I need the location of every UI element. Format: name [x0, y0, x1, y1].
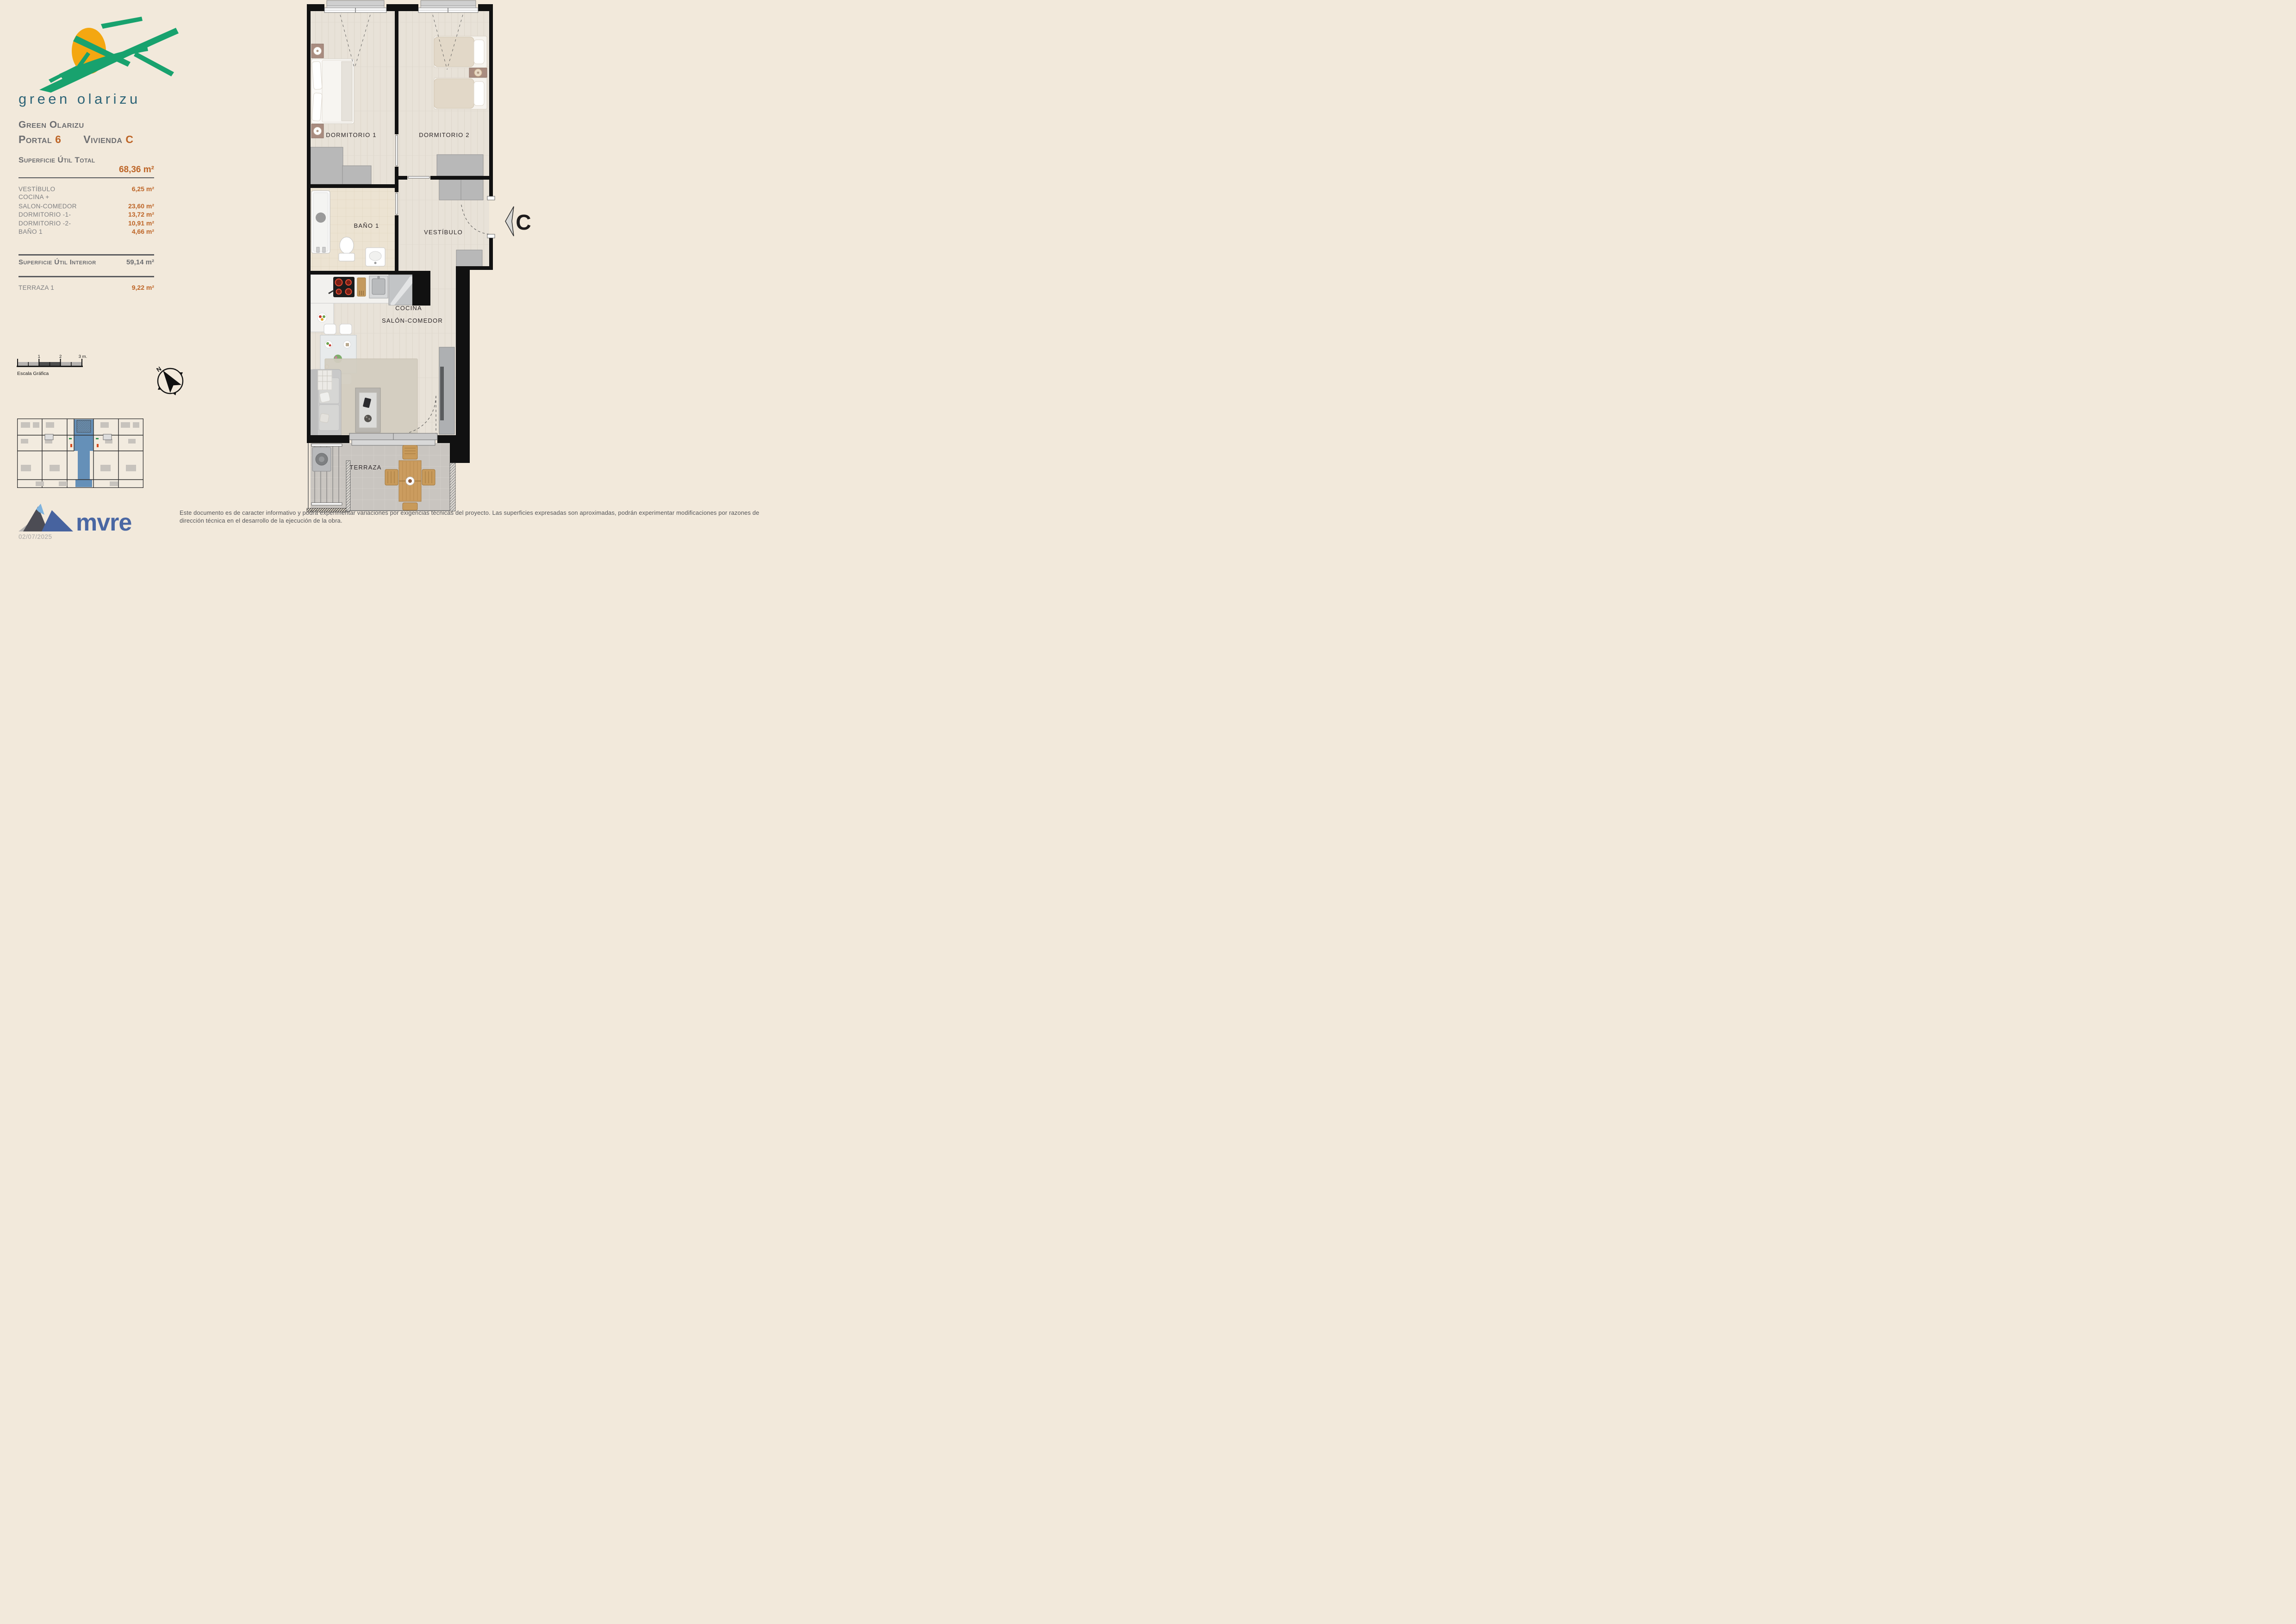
pillow [312, 93, 322, 121]
entrance-marker: C [505, 206, 531, 236]
window [418, 0, 478, 12]
tv [440, 367, 444, 420]
total-area-value: 68,36 m² [19, 165, 154, 175]
date: 02/07/2025 [19, 533, 52, 540]
room-area: 10,91 m² [128, 219, 154, 227]
bedroom2-furniture [434, 36, 487, 176]
wardrobe [311, 147, 343, 184]
divider-line [19, 254, 154, 256]
wardrobe [437, 155, 483, 176]
portal-label: Portal [19, 133, 52, 145]
room-row: COCINA + [19, 194, 154, 202]
vivienda-label: Vivienda [83, 133, 122, 145]
label-dormitorio1: DORMITORIO 1 [326, 131, 377, 138]
total-area-label: Superficie Útil Total [19, 156, 95, 165]
interior-area-row: Superficie Útil Interior 59,14 m² [19, 258, 154, 266]
door-frame [487, 196, 495, 200]
project-title: Green Olarizu [19, 119, 84, 131]
entrance-letter: C [516, 210, 531, 234]
brand-name: green olarizu [19, 91, 171, 107]
room-area: 6,25 m² [132, 185, 154, 193]
pillow [312, 61, 322, 89]
chair [403, 445, 417, 459]
label-bano1: BAÑO 1 [354, 222, 380, 229]
sliding-door [352, 440, 435, 445]
brush-strokes-icon [39, 17, 179, 93]
chair [324, 324, 336, 334]
label-terraza: TERRAZA [349, 464, 381, 471]
terraza-value: 9,22 m² [132, 284, 154, 291]
scale-tick-3: 3 m. [79, 354, 87, 359]
divider-line [19, 177, 154, 178]
terraza-area-row: TERRAZA 1 9,22 m² [19, 284, 154, 291]
room-row: DORMITORIO -2- 10,91 m² [19, 219, 154, 228]
duvet [434, 79, 474, 108]
faucet-icon [323, 247, 325, 252]
apartment-floor-plan: DORMITORIO 1 DORMITORIO 2 BAÑO 1 VESTÍBU… [296, 0, 546, 523]
door-leaf [396, 193, 398, 214]
faucet-icon [374, 262, 377, 264]
pillow [474, 81, 484, 106]
key-plan [17, 418, 143, 488]
toilet [340, 237, 354, 254]
room-name: BAÑO 1 [19, 228, 43, 235]
shower-drain [316, 212, 326, 223]
key-plan-stairs [77, 420, 91, 432]
door-leaf [408, 176, 429, 178]
label-cocina: COCINA [395, 305, 422, 312]
plaid-throw [318, 370, 332, 390]
faucet-icon [377, 276, 380, 279]
label-dormitorio2: DORMITORIO 2 [419, 131, 470, 138]
room-row: DORMITORIO -1- 13,72 m² [19, 211, 154, 219]
label-salon: SALÓN-COMEDOR [382, 317, 443, 324]
vivienda-value: C [125, 133, 133, 145]
compass-needle [163, 370, 181, 393]
room-name: SALON-COMEDOR [19, 203, 77, 210]
label-vestibulo: VESTÍBULO [424, 229, 463, 236]
room-row: BAÑO 1 4,66 m² [19, 228, 154, 236]
scale-bar: 1 2 3 m. Escala Gráfica [17, 353, 105, 379]
chair [385, 469, 398, 485]
room-area: 23,60 m² [128, 202, 154, 210]
bowl [364, 415, 372, 422]
room-areas-list: VESTÍBULO 6,25 m² COCINA + SALON-COMEDOR… [19, 185, 154, 236]
interior-area-value: 59,14 m² [126, 258, 154, 266]
room-row: VESTÍBULO 6,25 m² [19, 185, 154, 194]
chair [340, 324, 352, 334]
room-area: 4,66 m² [132, 228, 154, 235]
wardrobe [342, 166, 371, 184]
entrance-chevron-icon [505, 206, 514, 236]
interior-area-label: Superficie Útil Interior [19, 258, 96, 266]
scale-bar-label: Escala Gráfica [17, 371, 49, 376]
compass-icon: N [154, 365, 187, 397]
scale-tick-2: 2 [59, 354, 62, 359]
mvre-logo-icon: mvre [18, 503, 138, 535]
room-name: DORMITORIO -1- [19, 211, 71, 218]
room-area: 13,72 m² [128, 211, 154, 218]
door-leaf [396, 135, 398, 166]
room-name: COCINA + [19, 194, 50, 200]
portal-vivienda-line: Portal 6 Vivienda C [19, 133, 134, 146]
brand-logo-icon [32, 10, 185, 94]
disclaimer-text: Este documento es de caracter informativ… [180, 509, 765, 525]
floor-plan-sheet: green olarizu Green Olarizu Portal 6 Viv… [0, 0, 765, 542]
door-frame [487, 234, 495, 238]
scale-tick-1: 1 [38, 354, 40, 359]
room-name: VESTÍBULO [19, 186, 55, 193]
terraza-label: TERRAZA 1 [19, 284, 54, 291]
scale-bar-segments [17, 359, 83, 367]
duvet [434, 37, 474, 67]
mvre-logo-text: mvre [76, 509, 131, 535]
pillow [320, 413, 330, 423]
throw-blanket [342, 62, 352, 121]
pillow [474, 40, 484, 64]
divider-line [19, 276, 154, 277]
window [324, 0, 386, 12]
terrace-wall [450, 463, 455, 511]
room-row: SALON-COMEDOR 23,60 m² [19, 202, 154, 211]
pillow [319, 392, 330, 403]
faucet-icon [317, 247, 319, 252]
room-name: DORMITORIO -2- [19, 220, 71, 227]
cabinet [456, 250, 482, 269]
portal-value: 6 [55, 133, 61, 145]
